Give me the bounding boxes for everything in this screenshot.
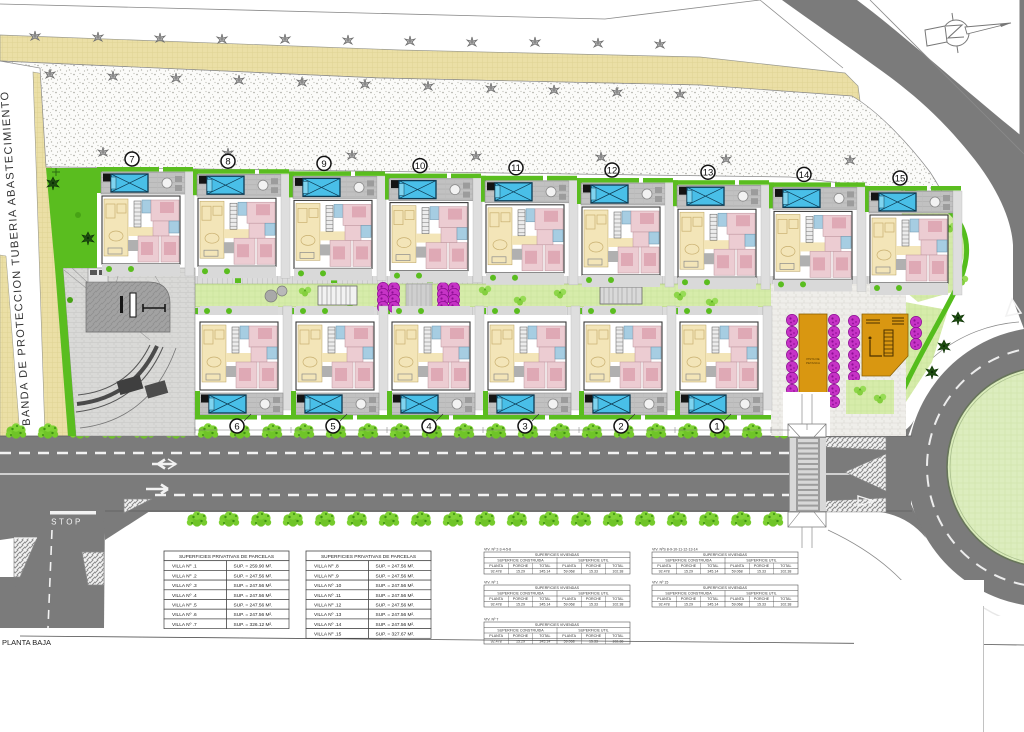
svg-text:VILLA Nº .11: VILLA Nº .11 [314,593,341,599]
svg-text:VIV. Nº 15: VIV. Nº 15 [652,581,668,585]
svg-text:VILLA Nº .14: VILLA Nº .14 [314,622,342,628]
svg-text:11: 11 [511,163,521,174]
svg-text:SUP. = 327.67 M².: SUP. = 327.67 M². [376,632,415,638]
svg-text:9: 9 [321,159,326,170]
svg-text:VIV. NºS 8-9-10-11-12-13-14: VIV. NºS 8-9-10-11-12-13-14 [652,548,698,552]
svg-text:TOTAL: TOTAL [780,597,791,601]
svg-text:7: 7 [129,154,134,165]
svg-text:102.38: 102.38 [780,570,791,574]
svg-text:92.478: 92.478 [491,603,502,607]
svg-text:TOTAL: TOTAL [707,597,718,601]
svg-text:15.29: 15.29 [684,570,693,574]
svg-text:SUPERFICIE UTIL: SUPERFICIE UTIL [578,592,608,596]
svg-text:15.33: 15.33 [757,603,766,607]
svg-text:PORCHE: PORCHE [681,564,697,568]
svg-text:VILLA Nº .13: VILLA Nº .13 [314,612,342,618]
svg-text:6: 6 [234,421,239,432]
svg-text:SUP. = 247.56 M².: SUP. = 247.56 M². [376,603,415,609]
svg-text:PLANTA: PLANTA [657,597,671,601]
svg-text:PLANTA: PLANTA [562,564,576,568]
svg-text:PLANTA: PLANTA [562,634,576,638]
svg-text:SUPERFICIE CONSTRUIDA: SUPERFICIE CONSTRUIDA [497,592,544,596]
svg-text:8: 8 [225,157,230,168]
svg-text:102.38: 102.38 [612,570,623,574]
svg-text:59.068: 59.068 [564,640,575,644]
svg-text:92.478: 92.478 [659,603,670,607]
svg-text:PORCHE: PORCHE [513,634,529,638]
svg-text:TOTAL: TOTAL [539,634,550,638]
svg-text:VIV. Nº 1: VIV. Nº 1 [484,581,498,585]
svg-text:SUP. = 247.56 M².: SUP. = 247.56 M². [234,593,273,599]
svg-text:13: 13 [703,168,714,179]
svg-text:345.14: 345.14 [707,570,718,574]
svg-text:SUPERFICIES VIVIENDAS: SUPERFICIES VIVIENDAS [535,553,580,557]
svg-text:SUPERFICIE CONSTRUIDA: SUPERFICIE CONSTRUIDA [665,592,712,596]
svg-text:10: 10 [415,161,426,172]
svg-text:SUP. = 259.90 M².: SUP. = 259.90 M². [234,564,273,570]
svg-text:15.33: 15.33 [589,570,598,574]
svg-text:2: 2 [618,421,623,432]
svg-text:59.068: 59.068 [732,603,743,607]
svg-text:VIV. Nº 2-3-4-5-6: VIV. Nº 2-3-4-5-6 [484,548,511,552]
svg-text:15.33: 15.33 [589,603,598,607]
svg-text:VILLA Nº .9: VILLA Nº .9 [314,573,339,579]
svg-text:4: 4 [426,421,431,432]
svg-text:59.068: 59.068 [564,570,575,574]
svg-text:92.478: 92.478 [491,570,502,574]
svg-text:SUP. = 247.56 M².: SUP. = 247.56 M². [234,583,273,589]
svg-text:15.33: 15.33 [757,570,766,574]
svg-text:TOTAL: TOTAL [707,564,718,568]
svg-text:SUP. = 247.56 M².: SUP. = 247.56 M². [376,593,415,599]
svg-text:SUP. = 247.56 M².: SUP. = 247.56 M². [376,612,415,618]
svg-text:15.29: 15.29 [516,603,525,607]
svg-text:VILLA Nº .5: VILLA Nº .5 [172,603,197,609]
svg-text:14: 14 [799,170,810,181]
svg-text:VILLA Nº .2: VILLA Nº .2 [172,573,197,579]
svg-text:PORCHE: PORCHE [513,597,529,601]
svg-text:12: 12 [607,165,618,176]
svg-text:PORCHE: PORCHE [681,597,697,601]
svg-text:VILLA Nº .1: VILLA Nº .1 [172,564,197,570]
svg-text:SUPERFICIE UTIL: SUPERFICIE UTIL [578,629,608,633]
svg-text:SUPERFICIE UTIL: SUPERFICIE UTIL [746,559,776,563]
svg-text:59.068: 59.068 [732,570,743,574]
svg-text:SUP. = 326.12 M².: SUP. = 326.12 M². [234,622,273,628]
svg-text:5: 5 [330,421,335,432]
svg-text:59.068: 59.068 [564,603,575,607]
svg-text:SUPERFICIES VIVIENDAS: SUPERFICIES VIVIENDAS [703,553,748,557]
svg-text:TOTAL: TOTAL [612,564,623,568]
svg-text:SUP. = 247.56 M².: SUP. = 247.56 M². [234,573,273,579]
svg-text:VILLA Nº .3: VILLA Nº .3 [172,583,197,589]
svg-text:345.14: 345.14 [707,603,718,607]
svg-text:SUPERFICIES VIVIENDAS: SUPERFICIES VIVIENDAS [535,586,580,590]
svg-text:PORCHE: PORCHE [754,597,770,601]
svg-text:VIV. Nº 7: VIV. Nº 7 [484,618,498,622]
svg-text:PLANTA: PLANTA [657,564,671,568]
svg-text:3: 3 [522,421,527,432]
svg-text:SUPERFICIE CONSTRUIDA: SUPERFICIE CONSTRUIDA [665,559,712,563]
svg-text:TOTAL: TOTAL [780,564,791,568]
svg-text:15.29: 15.29 [684,603,693,607]
svg-text:PORCHE: PORCHE [586,564,602,568]
svg-text:102.38: 102.38 [612,603,623,607]
svg-text:SUPERFICIES PRIVATIVAS DE PARC: SUPERFICIES PRIVATIVAS DE PARCELAS [179,554,274,560]
svg-text:345.14: 345.14 [539,603,550,607]
svg-text:PLANTA: PLANTA [489,597,503,601]
svg-text:VILLA Nº .6: VILLA Nº .6 [172,612,197,618]
svg-text:STOP: STOP [51,518,83,527]
svg-text:SUPERFICIES VIVIENDAS: SUPERFICIES VIVIENDAS [703,586,748,590]
svg-text:VILLA Nº .7: VILLA Nº .7 [172,622,197,628]
svg-text:PLANTA: PLANTA [489,634,503,638]
svg-text:15: 15 [895,173,906,184]
svg-text:VILLA Nº .15: VILLA Nº .15 [314,632,342,638]
svg-text:PLANTA: PLANTA [730,597,744,601]
svg-text:SUP. = 247.56 M².: SUP. = 247.56 M². [376,583,415,589]
svg-text:SUP. = 247.56 M².: SUP. = 247.56 M². [376,564,415,570]
svg-text:SUP. = 247.56 M².: SUP. = 247.56 M². [376,573,415,579]
svg-text:PETANCA: PETANCA [806,361,820,365]
svg-text:SUPERFICIE CONSTRUIDA: SUPERFICIE CONSTRUIDA [497,559,544,563]
svg-text:PORCHE: PORCHE [586,597,602,601]
svg-text:VILLA Nº .12: VILLA Nº .12 [314,603,342,609]
svg-text:PORCHE: PORCHE [586,634,602,638]
svg-text:TOTAL: TOTAL [612,634,623,638]
svg-text:SUPERFICIES VIVIENDAS: SUPERFICIES VIVIENDAS [535,623,580,627]
svg-text:345.14: 345.14 [539,570,550,574]
svg-text:TOTAL: TOTAL [612,597,623,601]
svg-text:PLANTA: PLANTA [489,564,503,568]
svg-text:VILLA Nº .8: VILLA Nº .8 [314,564,339,570]
svg-text:102.38: 102.38 [612,640,623,644]
svg-text:102.38: 102.38 [780,603,791,607]
svg-text:VILLA Nº .4: VILLA Nº .4 [172,593,197,599]
svg-text:SUPERFICIE UTIL: SUPERFICIE UTIL [578,559,608,563]
svg-text:SUPERFICIE UTIL: SUPERFICIE UTIL [746,592,776,596]
svg-text:VILLA Nº .10: VILLA Nº .10 [314,583,342,589]
svg-text:TOTAL: TOTAL [539,597,550,601]
svg-text:92.478: 92.478 [659,570,670,574]
svg-text:SUP. = 247.56 M².: SUP. = 247.56 M². [234,603,273,609]
svg-text:15.29: 15.29 [516,570,525,574]
svg-text:PLANTA: PLANTA [562,597,576,601]
svg-text:PLANTA: PLANTA [730,564,744,568]
svg-text:PORCHE: PORCHE [513,564,529,568]
svg-text:PORCHE: PORCHE [754,564,770,568]
svg-text:SUPERFICIES PRIVATIVAS DE PARC: SUPERFICIES PRIVATIVAS DE PARCELAS [321,554,416,560]
svg-text:SUPERFICIE CONSTRUIDA: SUPERFICIE CONSTRUIDA [497,629,544,633]
svg-text:SUP. = 247.56 M².: SUP. = 247.56 M². [234,612,273,618]
svg-text:PLANTA BAJA: PLANTA BAJA [2,638,51,647]
svg-text:TOTAL: TOTAL [539,564,550,568]
svg-text:SUP. = 247.56 M².: SUP. = 247.56 M². [376,622,415,628]
svg-text:1: 1 [714,421,719,432]
svg-text:15.33: 15.33 [589,640,598,644]
